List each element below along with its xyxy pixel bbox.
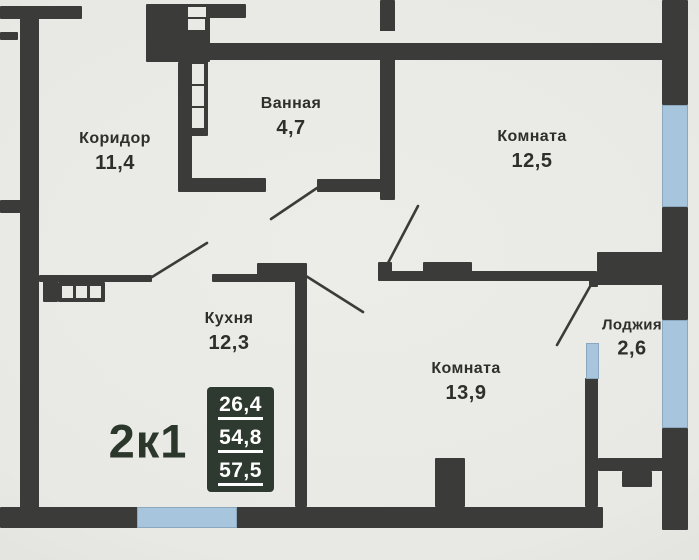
wall-opening: [380, 31, 395, 43]
wall: [295, 275, 307, 507]
wall: [423, 262, 472, 281]
window-glazing: [662, 320, 688, 428]
wall: [662, 207, 688, 320]
room-name: Комната: [431, 361, 500, 377]
duct-cell: [188, 19, 205, 30]
wall: [598, 458, 688, 471]
vent-cell: [76, 286, 87, 298]
vent-block: [43, 275, 58, 302]
room-name: Кухня: [205, 311, 254, 327]
wall: [20, 6, 39, 528]
room-label-loggia: Лоджия 2,6: [602, 318, 662, 359]
wall: [178, 62, 192, 192]
badge-area-value: 57,5: [218, 460, 263, 486]
door-swing-line: [152, 243, 207, 277]
room-name: Комната: [497, 129, 566, 145]
room-label-kitchen: Кухня 12,3: [205, 311, 254, 353]
room-area: 2,6: [602, 339, 662, 359]
door-swing-line: [271, 188, 317, 219]
badge-area-value: 26,4: [218, 394, 263, 420]
wall: [378, 262, 392, 280]
wall: [0, 32, 18, 40]
room-area: 12,5: [497, 151, 566, 171]
room-name: Коридор: [79, 131, 151, 147]
room-name: Лоджия: [602, 318, 662, 333]
wall: [589, 278, 598, 287]
room-label-corridor: Коридор 11,4: [79, 131, 151, 173]
badge-area-value: 54,8: [218, 427, 263, 453]
door-swing-line: [557, 283, 592, 345]
duct-cell: [188, 7, 206, 17]
room-label-living-room: Комната 13,9: [431, 361, 500, 403]
floor-plan: Коридор 11,4 Ванная 4,7 Комната 12,5 Кух…: [0, 0, 699, 560]
unit-type-label: 2к1: [109, 414, 188, 469]
wall: [435, 458, 465, 507]
window-glazing: [662, 105, 688, 207]
vent-cell: [90, 286, 101, 298]
window-glazing: [586, 343, 599, 379]
room-area: 12,3: [205, 333, 254, 353]
wall: [188, 178, 266, 192]
room-name: Ванная: [261, 96, 321, 112]
vent-cell: [62, 286, 73, 298]
wall: [662, 428, 688, 530]
room-area: 11,4: [79, 153, 151, 173]
room-area: 4,7: [261, 118, 321, 138]
wall: [317, 179, 383, 192]
wall: [0, 200, 25, 213]
room-label-bathroom: Ванная 4,7: [261, 96, 321, 138]
room-area: 13,9: [431, 383, 500, 403]
wall: [380, 0, 395, 200]
wall: [0, 6, 82, 19]
door-swing-line: [388, 206, 418, 263]
wall: [622, 471, 652, 487]
window-glazing: [137, 507, 237, 528]
wall: [184, 43, 688, 60]
wall: [0, 507, 603, 528]
wall: [585, 378, 598, 507]
area-summary-badge: 26,4 54,8 57,5: [207, 387, 274, 492]
wall: [208, 4, 246, 18]
wall: [378, 271, 597, 281]
wall: [597, 252, 663, 285]
door-swing-line: [306, 276, 363, 312]
room-label-bedroom: Комната 12,5: [497, 129, 566, 171]
wall: [212, 274, 258, 282]
